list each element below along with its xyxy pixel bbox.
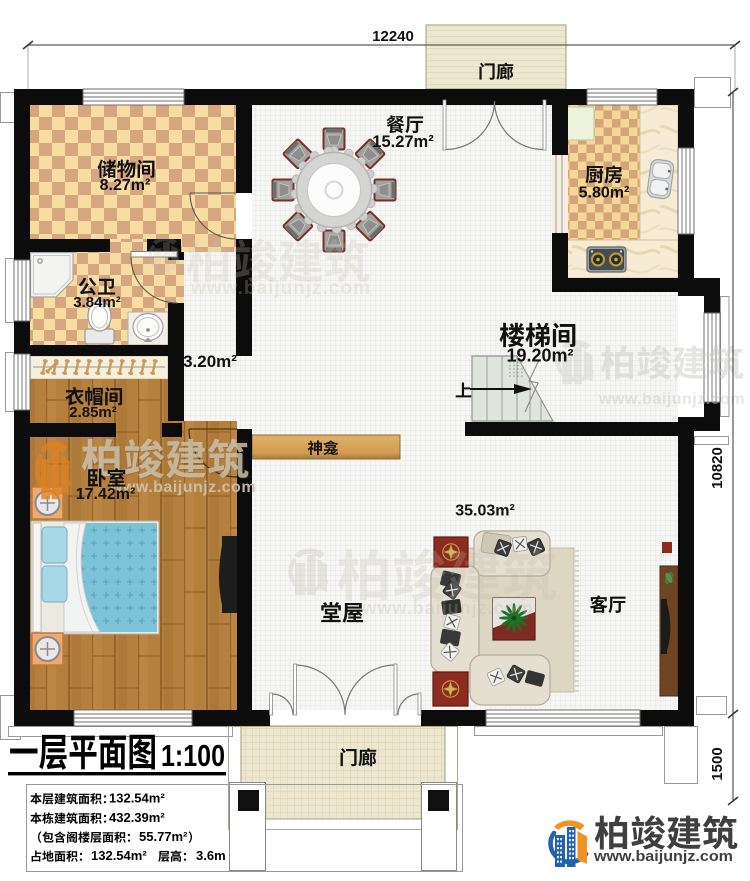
svg-text:55.77m²: 55.77m² <box>139 829 188 844</box>
svg-text:12240: 12240 <box>372 28 414 45</box>
svg-text:3.6m: 3.6m <box>196 848 226 863</box>
svg-text:1500: 1500 <box>709 747 726 780</box>
svg-text:2.85m²: 2.85m² <box>69 404 117 421</box>
svg-text:5.80m²: 5.80m² <box>579 185 630 202</box>
svg-text:3.84m²: 3.84m² <box>73 294 121 311</box>
svg-text:www.baijunjz.com: www.baijunjz.com <box>190 278 371 299</box>
svg-text:15.27m²: 15.27m² <box>372 133 434 151</box>
svg-text:www.baijunjz.com: www.baijunjz.com <box>593 848 733 865</box>
svg-text:17.42m²: 17.42m² <box>76 486 136 503</box>
svg-text:35.03m²: 35.03m² <box>455 503 515 520</box>
svg-text:10820: 10820 <box>709 447 726 489</box>
svg-text:132.54m²: 132.54m² <box>109 791 165 806</box>
svg-text:www.baijunjz.com: www.baijunjz.com <box>598 391 745 408</box>
svg-text:8.27m²: 8.27m² <box>100 177 151 194</box>
svg-text:432.39m²: 432.39m² <box>109 810 165 825</box>
svg-text:132.54m²: 132.54m² <box>91 848 147 863</box>
svg-text:3.20m²: 3.20m² <box>183 352 237 371</box>
svg-text:19.20m²: 19.20m² <box>506 346 573 366</box>
svg-text:1:100: 1:100 <box>161 738 225 773</box>
svg-text:www.baijunjz.com: www.baijunjz.com <box>361 598 533 618</box>
